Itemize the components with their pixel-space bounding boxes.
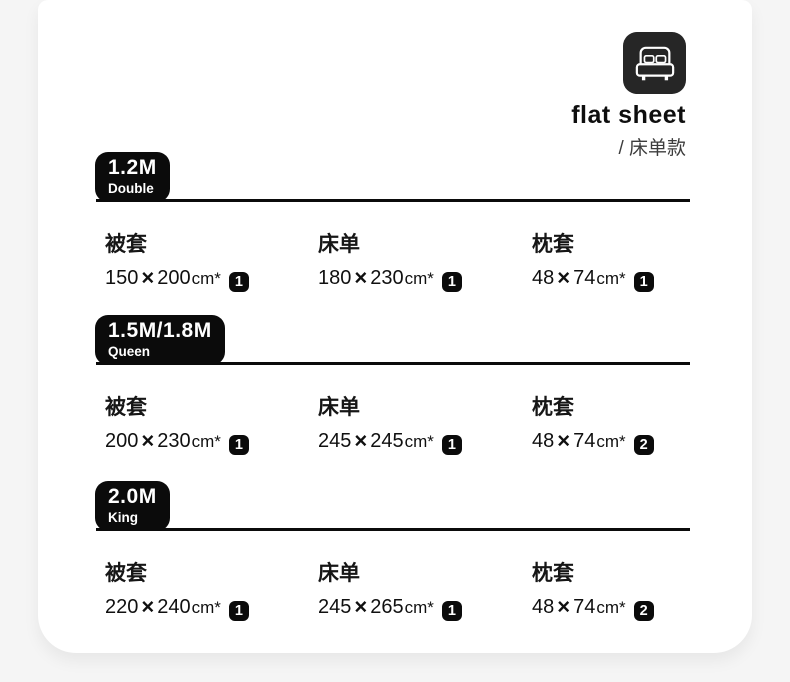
quantity-badge: 1 <box>442 435 462 455</box>
dim-height: 74 <box>573 267 595 289</box>
item-label: 床单 <box>318 561 462 587</box>
dim-unit: cm* <box>405 269 434 288</box>
size-badge: 2.0M King <box>95 481 170 531</box>
size-badge-size: 2.0M <box>108 486 157 508</box>
dim-height: 240 <box>157 596 190 618</box>
dim-unit: cm* <box>596 432 625 451</box>
dim-width: 245 <box>318 596 351 618</box>
page-background: flat sheet / 床单款 1.2M Double 被套 150×200c… <box>0 0 790 682</box>
page-title: flat sheet <box>571 101 686 130</box>
size-badge: 1.5M/1.8M Queen <box>95 315 225 365</box>
spec-item-pillowcase: 枕套 48×74cm*2 <box>532 561 654 621</box>
dim-width: 48 <box>532 596 554 618</box>
item-label: 枕套 <box>532 561 654 587</box>
spec-item-duvet-cover: 被套 200×230cm*1 <box>105 395 249 455</box>
dim-unit: cm* <box>192 598 221 617</box>
size-section-double: 1.2M Double 被套 150×200cm*1 床单 180×230cm*… <box>38 152 752 302</box>
spec-item-bed-sheet: 床单 180×230cm*1 <box>318 232 462 292</box>
quantity-badge: 1 <box>442 601 462 621</box>
section-divider-line <box>96 528 690 531</box>
item-dimensions: 48×74cm*2 <box>532 427 654 455</box>
dim-width: 220 <box>105 596 138 618</box>
quantity-badge: 1 <box>229 435 249 455</box>
item-label: 枕套 <box>532 232 654 258</box>
dim-unit: cm* <box>405 598 434 617</box>
dim-width: 150 <box>105 267 138 289</box>
times-symbol: × <box>557 265 570 290</box>
dim-height: 74 <box>573 596 595 618</box>
times-symbol: × <box>354 428 367 453</box>
item-label: 床单 <box>318 395 462 421</box>
dim-unit: cm* <box>192 269 221 288</box>
item-label: 被套 <box>105 561 249 587</box>
size-badge-label: Queen <box>108 345 212 359</box>
quantity-badge: 1 <box>229 601 249 621</box>
dim-height: 230 <box>370 267 403 289</box>
size-section-queen: 1.5M/1.8M Queen 被套 200×230cm*1 床单 245×24… <box>38 315 752 465</box>
spec-item-bed-sheet: 床单 245×265cm*1 <box>318 561 462 621</box>
item-dimensions: 180×230cm*1 <box>318 264 462 292</box>
times-symbol: × <box>557 594 570 619</box>
dim-width: 48 <box>532 267 554 289</box>
dim-height: 265 <box>370 596 403 618</box>
item-dimensions: 150×200cm*1 <box>105 264 249 292</box>
item-dimensions: 48×74cm*1 <box>532 264 654 292</box>
spec-item-bed-sheet: 床单 245×245cm*1 <box>318 395 462 455</box>
dim-unit: cm* <box>405 432 434 451</box>
item-label: 床单 <box>318 232 462 258</box>
times-symbol: × <box>141 265 154 290</box>
double-bed-icon-glyph <box>628 36 682 90</box>
spec-item-duvet-cover: 被套 150×200cm*1 <box>105 232 249 292</box>
times-symbol: × <box>354 265 367 290</box>
item-dimensions: 200×230cm*1 <box>105 427 249 455</box>
size-badge-label: Double <box>108 182 157 196</box>
spec-item-pillowcase: 枕套 48×74cm*1 <box>532 232 654 292</box>
size-section-king: 2.0M King 被套 220×240cm*1 床单 245×265cm*1 … <box>38 481 752 631</box>
item-label: 枕套 <box>532 395 654 421</box>
spec-card: flat sheet / 床单款 1.2M Double 被套 150×200c… <box>38 0 752 653</box>
size-badge-label: King <box>108 511 157 525</box>
times-symbol: × <box>141 594 154 619</box>
dim-width: 200 <box>105 430 138 452</box>
item-dimensions: 220×240cm*1 <box>105 593 249 621</box>
dim-height: 74 <box>573 430 595 452</box>
dim-width: 180 <box>318 267 351 289</box>
times-symbol: × <box>141 428 154 453</box>
dim-width: 245 <box>318 430 351 452</box>
times-symbol: × <box>557 428 570 453</box>
dim-height: 245 <box>370 430 403 452</box>
item-dimensions: 48×74cm*2 <box>532 593 654 621</box>
quantity-badge: 1 <box>442 272 462 292</box>
dim-unit: cm* <box>192 432 221 451</box>
item-dimensions: 245×265cm*1 <box>318 593 462 621</box>
item-dimensions: 245×245cm*1 <box>318 427 462 455</box>
size-badge-size: 1.5M/1.8M <box>108 320 212 342</box>
times-symbol: × <box>354 594 367 619</box>
dim-height: 200 <box>157 267 190 289</box>
section-divider-line <box>96 199 690 202</box>
item-label: 被套 <box>105 395 249 421</box>
dim-height: 230 <box>157 430 190 452</box>
dim-width: 48 <box>532 430 554 452</box>
quantity-badge: 1 <box>229 272 249 292</box>
spec-item-pillowcase: 枕套 48×74cm*2 <box>532 395 654 455</box>
quantity-badge: 2 <box>634 435 654 455</box>
quantity-badge: 2 <box>634 601 654 621</box>
item-label: 被套 <box>105 232 249 258</box>
dim-unit: cm* <box>596 269 625 288</box>
double-bed-icon <box>623 32 686 94</box>
quantity-badge: 1 <box>634 272 654 292</box>
spec-item-duvet-cover: 被套 220×240cm*1 <box>105 561 249 621</box>
size-badge-size: 1.2M <box>108 157 157 179</box>
size-badge: 1.2M Double <box>95 152 170 202</box>
dim-unit: cm* <box>596 598 625 617</box>
